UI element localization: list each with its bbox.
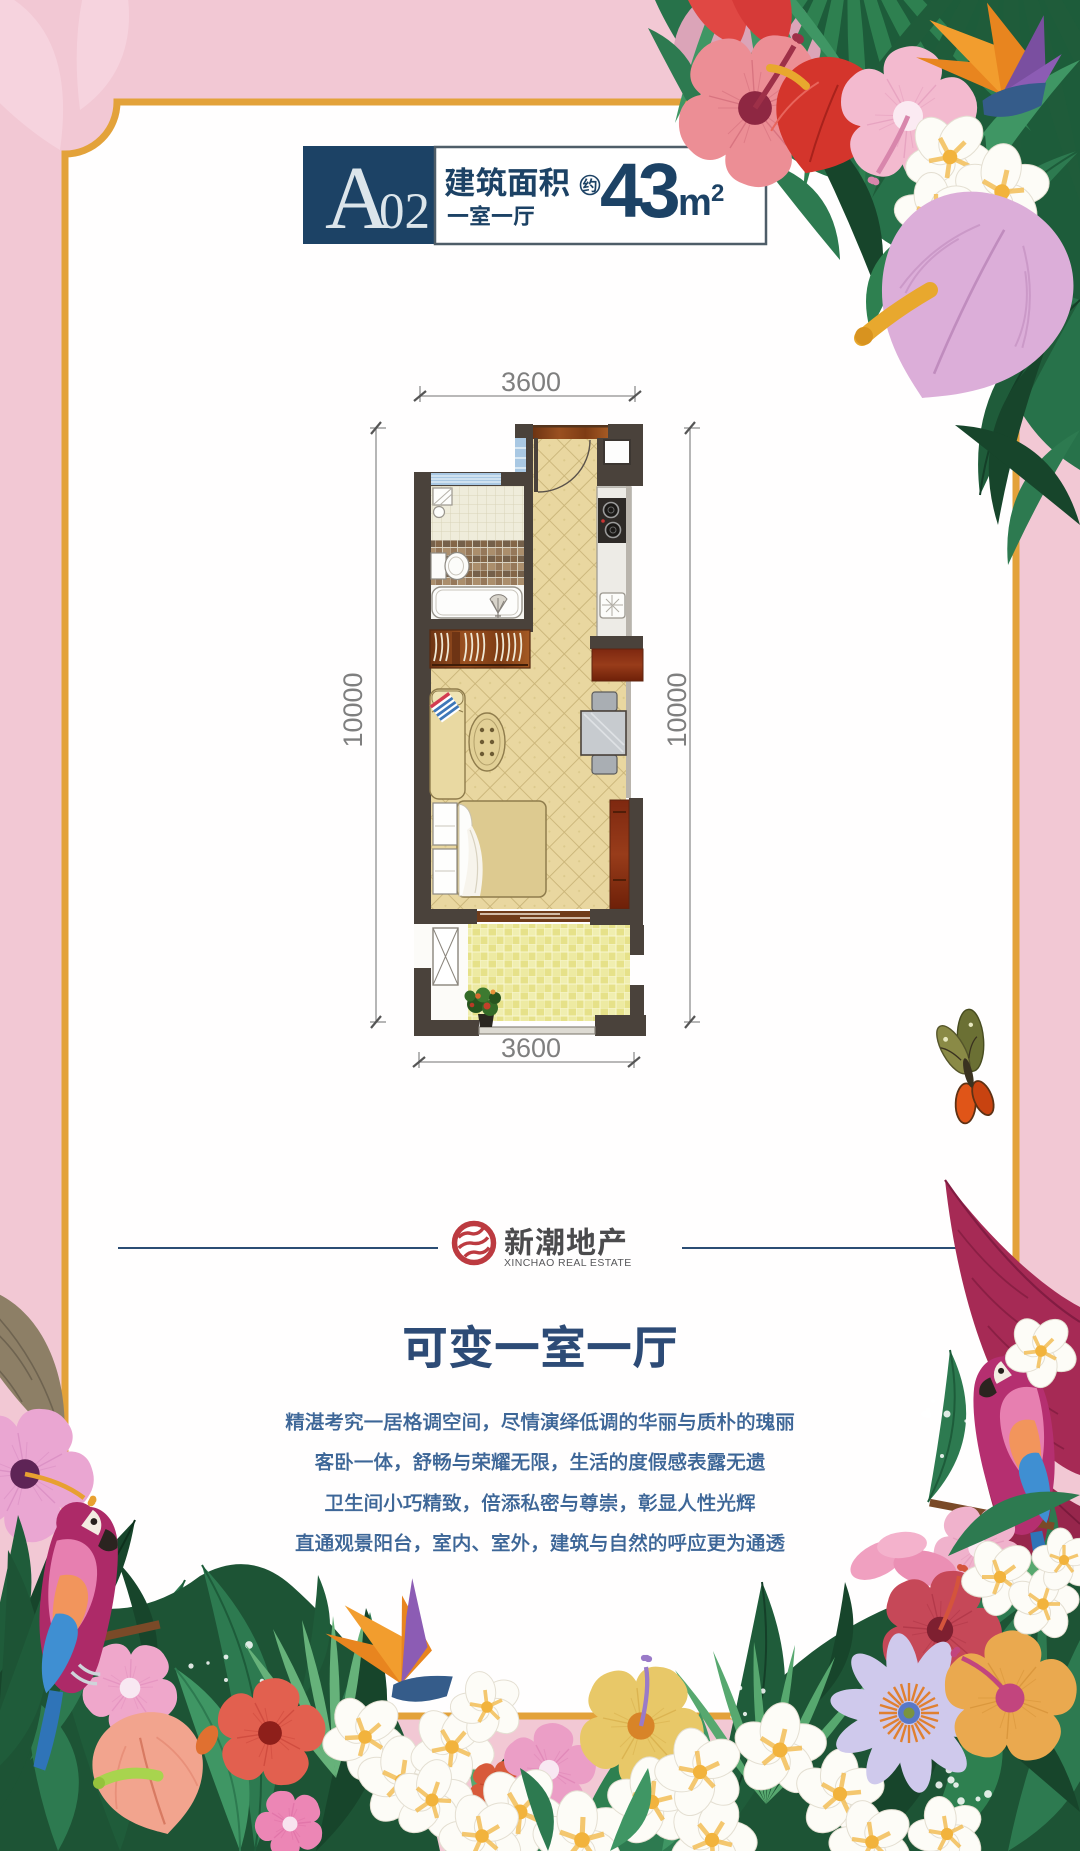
svg-text:10000: 10000: [662, 672, 692, 747]
svg-text:02: 02: [379, 184, 430, 240]
svg-text:43: 43: [600, 148, 679, 234]
svg-text:XINCHAO REAL ESTATE: XINCHAO REAL ESTATE: [504, 1257, 632, 1269]
svg-text:m: m: [678, 182, 712, 224]
svg-text:2: 2: [711, 180, 724, 207]
svg-text:10000: 10000: [338, 672, 368, 747]
svg-text:3600: 3600: [501, 367, 561, 397]
svg-text:3600: 3600: [501, 1033, 561, 1063]
